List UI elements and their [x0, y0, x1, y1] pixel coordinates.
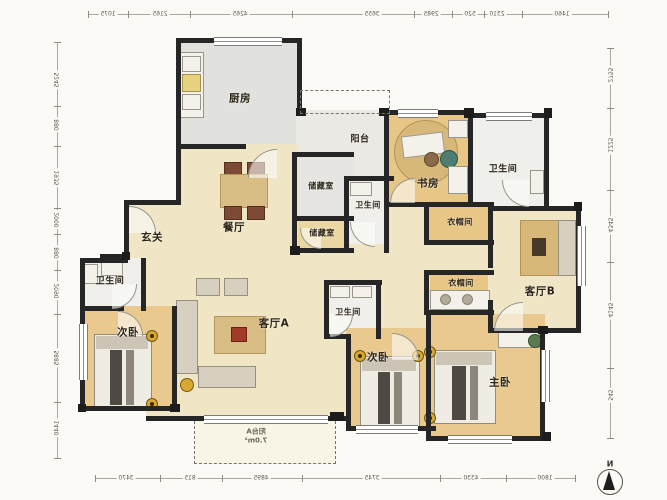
wall: [146, 416, 204, 421]
tick: [54, 208, 61, 209]
wall: [488, 300, 493, 333]
wall-pillar: [538, 326, 548, 334]
living-a-decor: [231, 327, 247, 342]
living-b-tv: [532, 238, 546, 256]
tick: [95, 475, 96, 482]
compass-needle-icon: [603, 471, 615, 490]
wall: [424, 270, 494, 275]
window: [486, 112, 532, 121]
bath-center-sink: [330, 286, 350, 298]
dim-left-6: 2090: [54, 281, 61, 300]
wall-pillar: [464, 108, 474, 118]
room-label-master: 主卧: [489, 375, 511, 390]
bath-mid-sink: [350, 182, 372, 196]
bed-left-blanket: [110, 350, 122, 405]
tick: [54, 106, 61, 107]
wall: [384, 110, 389, 253]
dim-top-2: 2165: [150, 11, 169, 18]
tick: [575, 475, 576, 482]
tick: [302, 475, 303, 482]
floor-corridor-mid2: [389, 207, 426, 247]
window: [398, 109, 438, 118]
dim-left-7: 5885: [54, 348, 61, 367]
wall: [468, 113, 473, 207]
tick: [54, 234, 61, 235]
wall: [292, 152, 297, 253]
tick: [522, 11, 523, 18]
dim-top-5: 2985: [421, 11, 440, 18]
tick: [190, 11, 191, 18]
dim-left-3: 1935: [54, 168, 61, 187]
dim-top-6: 520: [462, 11, 477, 18]
dim-bottom-2: 815: [182, 475, 197, 482]
wall: [176, 38, 181, 149]
kitchen-stove: [182, 74, 201, 92]
window: [214, 37, 282, 46]
room-label-cloak-2: 衣帽间: [448, 278, 474, 289]
wall: [344, 176, 349, 253]
bed-master-blanket: [470, 366, 478, 420]
study-cabinet: [448, 166, 468, 194]
tick: [484, 11, 485, 18]
kitchen-sink: [182, 56, 201, 72]
tick: [54, 458, 61, 459]
room-label-bath-top-right: 卫生间: [489, 162, 518, 175]
balcony-sliding-door: [204, 415, 328, 424]
dim-left-2: 880: [54, 117, 61, 132]
living-a-sofa-bottom: [198, 366, 256, 388]
bed-knob: [146, 330, 158, 342]
wall: [424, 240, 494, 245]
dim-right-5: 545: [607, 387, 614, 402]
room-label-bath-left: 卫生间: [96, 274, 125, 287]
wall: [324, 280, 329, 339]
living-b-sofa: [558, 220, 576, 276]
room-label-storage-2: 储藏室: [309, 228, 335, 239]
compass-north-label: N: [607, 460, 614, 469]
bed-master-blanket: [452, 366, 466, 420]
wall-pillar: [170, 404, 180, 412]
dim-right-4: 4145: [607, 300, 614, 319]
room-label-living-b: 客厅B: [525, 284, 556, 299]
kitchen-cabinet: [182, 94, 201, 110]
room-label-bedroom-left: 次卧: [117, 325, 139, 340]
room-label-study: 书房: [417, 176, 439, 191]
tick: [54, 42, 61, 43]
wall-pillar: [544, 108, 552, 118]
wall: [488, 206, 581, 211]
wall: [376, 280, 381, 339]
wall: [424, 310, 494, 315]
tick: [54, 314, 61, 315]
wall: [80, 406, 177, 411]
tick: [607, 368, 614, 369]
tick: [54, 146, 61, 147]
tick: [414, 11, 415, 18]
balcony-a-area: 7.0m²: [245, 436, 268, 445]
dim-bottom-5: 4330: [461, 475, 480, 482]
dim-top-1: 1075: [98, 11, 117, 18]
dim-right-3: 4345: [607, 215, 614, 234]
cloak-2-icon: [440, 294, 451, 305]
living-a-sofa-left: [176, 300, 198, 374]
window: [577, 226, 586, 286]
dim-right-1: 2755: [607, 65, 614, 84]
dim-top-8: 1460: [552, 11, 571, 18]
tick: [292, 11, 293, 18]
room-label-balcony-top: 阳台: [350, 132, 369, 145]
dim-left-8: 1440: [54, 418, 61, 437]
room-label-entry: 玄关: [141, 230, 163, 245]
wall: [124, 200, 180, 205]
tick: [607, 108, 614, 109]
bed-mid-blanket: [378, 372, 390, 424]
wall-pillar: [542, 432, 551, 441]
tick: [607, 48, 614, 49]
tick: [222, 475, 223, 482]
wall: [426, 310, 431, 441]
living-a-armchair: [224, 278, 248, 296]
wall: [172, 306, 177, 411]
tick: [54, 402, 61, 403]
tick: [88, 11, 89, 18]
living-a-armchair: [196, 278, 220, 296]
balcony-a-name: 阳台A: [245, 427, 268, 436]
dining-table: [220, 174, 268, 208]
dim-top-7: 2310: [487, 11, 506, 18]
cloak-2-icon: [462, 294, 473, 305]
wall: [176, 144, 181, 205]
room-label-kitchen: 厨房: [229, 91, 251, 106]
dining-chair: [247, 206, 265, 220]
room-label-storage-1: 储藏室: [308, 181, 334, 192]
room-label-bath-center: 卫生间: [335, 307, 361, 318]
wall: [292, 152, 354, 157]
study-shelf: [448, 120, 468, 138]
wall: [544, 113, 549, 207]
floor-plan: 厨房 阳台 储藏室 卫生间 储藏室 书房 卫生间 衣帽间 客厅B 衣帽间 玄关 …: [0, 0, 667, 500]
bed-knob: [354, 350, 366, 362]
bed-mid-blanket: [394, 372, 402, 424]
wall: [324, 280, 382, 285]
window: [448, 435, 512, 444]
window: [356, 425, 418, 434]
dim-bottom-1: 3470: [116, 475, 135, 482]
window: [79, 324, 88, 380]
room-label-dining: 餐厅: [223, 220, 245, 235]
wall-pillar: [122, 252, 130, 260]
wall: [424, 202, 429, 245]
wall: [141, 258, 146, 311]
wall-pillar: [574, 202, 582, 211]
tick: [54, 270, 61, 271]
dim-bottom-3: 4895: [251, 475, 270, 482]
tick: [607, 262, 614, 263]
dim-left-4: 2000: [54, 210, 61, 229]
living-a-lamp: [180, 378, 194, 392]
dim-top-4: 3655: [362, 11, 381, 18]
wall: [346, 334, 351, 431]
dim-left-1: 5245: [54, 70, 61, 89]
bed-left-blanket: [126, 350, 134, 405]
bath-center-toilet: [352, 286, 372, 298]
tick: [506, 475, 507, 482]
cloak-2-cabinet: [430, 290, 490, 310]
tick: [440, 475, 441, 482]
dim-top-3: 4265: [230, 11, 249, 18]
room-label-cloak-1: 衣帽间: [447, 217, 473, 228]
dim-left-5: 880: [54, 245, 61, 260]
dim-bottom-4: 3745: [362, 475, 381, 482]
wall: [80, 258, 128, 263]
wall-pillar: [290, 246, 300, 255]
tick: [128, 11, 129, 18]
ac-platform-dashed: [300, 90, 390, 114]
room-label-living-a: 客厅A: [259, 316, 290, 331]
bath-top-right-fixture: [530, 170, 544, 194]
dim-right-2: 1225: [607, 135, 614, 154]
wall-pillar: [330, 412, 344, 421]
wall: [424, 270, 429, 315]
tick: [452, 11, 453, 18]
dimension-line-bottom: [95, 478, 575, 479]
room-label-balcony-a: 阳台A 7.0m²: [245, 427, 268, 445]
bed-master-pillow: [436, 352, 492, 365]
tick: [607, 190, 614, 191]
wall: [488, 206, 493, 268]
dim-bottom-6: 1800: [535, 475, 554, 482]
tick: [607, 438, 614, 439]
dining-chair: [224, 206, 242, 220]
window: [541, 350, 550, 402]
tick: [160, 475, 161, 482]
wall: [176, 144, 246, 149]
room-label-bath-mid: 卫生间: [355, 200, 381, 211]
tick: [608, 11, 609, 18]
wall-pillar: [78, 404, 86, 412]
dimension-line-right: [610, 48, 611, 438]
study-chair: [424, 152, 439, 167]
room-label-bedroom-mid: 次卧: [367, 350, 389, 365]
